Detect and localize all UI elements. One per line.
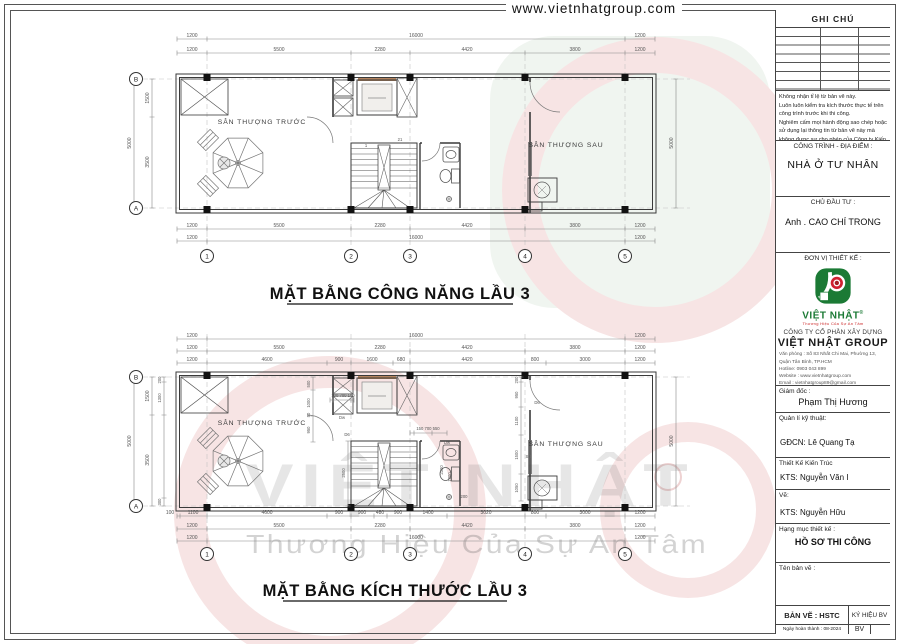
- grid-bubble-label: B: [134, 76, 138, 83]
- design-stage-label: Hạng mục thiết kế :: [776, 524, 890, 533]
- dim-label: 1200: [634, 535, 645, 541]
- dim-label: 1200: [186, 33, 197, 39]
- contact-line: Hotline: 0903 043 899: [779, 366, 887, 373]
- website-url: www.vietnhatgroup.com: [506, 1, 682, 16]
- dim-label: 1200: [186, 523, 197, 529]
- note-line: Nghiêm cấm mọi hành động sao chép hoặc s…: [779, 119, 887, 140]
- technical-manager-name: GĐCN: Lê Quang Tạ: [776, 438, 890, 447]
- dim-label: 3000: [579, 357, 590, 363]
- dim-label: 4420: [461, 47, 472, 53]
- dim-label: 1100: [514, 416, 519, 426]
- dim-label: 200: [461, 494, 469, 499]
- dim-label: 5000: [669, 137, 675, 148]
- design-stage-section: Hạng mục thiết kế : HỒ SƠ THI CÔNG: [776, 523, 890, 562]
- logo-brand-text: VIỆT NHẬT: [802, 310, 859, 321]
- architect-name: KTS: Nguyễn Văn I: [776, 473, 890, 482]
- floor-plan-drawing: VIỆT NHẬT Thương Hiệu Của Sự An Tâm: [0, 0, 900, 644]
- grid-bubble-label: 3: [408, 551, 412, 558]
- grid-bubble-label: A: [134, 205, 139, 212]
- dim-label: 1600: [366, 357, 377, 363]
- dim-label: 2280: [374, 523, 385, 529]
- dim-label: 3800: [569, 47, 580, 53]
- dim-label: 1200: [186, 47, 197, 53]
- room-label-front-terrace: SÂN THƯỢNG TRƯỚC: [218, 418, 306, 427]
- dim-label: 1500: [145, 390, 151, 401]
- dim-label: 1200: [634, 223, 645, 229]
- architecture-section: Thiết Kế Kiến Trúc KTS: Nguyễn Văn I: [776, 457, 890, 489]
- dim-label: 1500: [145, 92, 151, 103]
- dim-label: 900: [335, 510, 344, 516]
- dim-label: 3500: [145, 454, 151, 465]
- director-section: Giám đốc : Phạm Thị Hương: [776, 385, 890, 412]
- room-label-rear-terrace: SÂN THƯỢNG SAU: [528, 140, 603, 149]
- dim-label: 1400: [422, 510, 433, 516]
- dim-label: 1200: [634, 235, 645, 241]
- architecture-label: Thiết Kế Kiến Trúc: [776, 458, 890, 467]
- dim-label: 1200: [447, 472, 452, 482]
- revision-table: [776, 27, 890, 90]
- grid-bubble-label: 5: [623, 551, 627, 558]
- dim-label: 1300: [157, 393, 162, 403]
- dim-label: 800: [531, 510, 540, 516]
- grid-bubble-label: 2: [349, 253, 353, 260]
- company-name: VIỆT NHẬT GROUP: [776, 337, 890, 349]
- dim-label: 1200: [186, 333, 197, 339]
- dim-label: 3000: [579, 510, 590, 516]
- dim-label: 3800: [569, 523, 580, 529]
- grid-bubble-label: 1: [205, 551, 209, 558]
- dim-label: 2280: [374, 345, 385, 351]
- project-value: NHÀ Ở TƯ NHÂN: [776, 159, 890, 171]
- door-label: Dw: [444, 440, 451, 445]
- watermark-tagline-text: Thương Hiệu Của Sự An Tâm: [246, 529, 708, 559]
- dim-label: 4600: [261, 510, 272, 516]
- design-stage-value: HỒ SƠ THI CÔNG: [776, 537, 890, 547]
- dim-label: 16000: [409, 33, 423, 39]
- grid-bubble-label: 4: [523, 253, 527, 260]
- dim-label: 900: [335, 357, 344, 363]
- dim-label: 200: [157, 376, 162, 384]
- company-contact: Văn phòng : Số 83 Nhất Chi Mai, Phường 1…: [776, 351, 890, 385]
- room-label-rear-terrace: SÂN THƯỢNG SAU: [528, 439, 603, 448]
- title-block: GHI CHÚ Không nhận tỉ lệ từ bản vẽ này. …: [775, 10, 890, 634]
- door-label: D6: [534, 400, 540, 405]
- designer-section: ĐƠN VỊ THIẾT KẾ : VIỆT NHẬT® Thương Hiệu…: [776, 252, 890, 385]
- dim-label: 4420: [461, 223, 472, 229]
- dim-label: 1200: [634, 510, 645, 516]
- dim-label: 150 700 550: [416, 426, 440, 431]
- owner-section: CHỦ ĐẦU TƯ : Anh . CAO CHÍ TRONG: [776, 196, 890, 252]
- dim-label: 5500: [273, 523, 284, 529]
- dim-label: 3800: [569, 223, 580, 229]
- dim-label: 300: [157, 498, 162, 506]
- viet-nhat-logo-icon: [810, 263, 856, 309]
- dim-label: 1200: [634, 357, 645, 363]
- dim-label: 950: [514, 391, 519, 399]
- dim-label: 5500: [273, 345, 284, 351]
- dim-label: 5500: [273, 223, 284, 229]
- dim-label: 1200: [186, 535, 197, 541]
- plan2-title: MẶT BẰNG KÍCH THƯỚC LẦU 3: [263, 581, 528, 600]
- dim-label: 5000: [127, 435, 133, 446]
- symbol-label: KÝ HIỆU BV: [848, 606, 890, 624]
- dim-label: 680: [397, 357, 406, 363]
- dim-label: 3500: [145, 156, 151, 167]
- note-line: Luôn luôn kiểm tra kích thước thực tế tr…: [779, 102, 887, 118]
- notes-header: GHI CHÚ: [776, 10, 890, 27]
- dim-label: 5500: [273, 47, 284, 53]
- dim-label: 4420: [461, 357, 472, 363]
- dim-label: 1100: [188, 510, 199, 516]
- dim-label: 100: [166, 510, 175, 516]
- door-label: D6: [344, 432, 350, 437]
- dim-label: 950: [306, 426, 311, 434]
- dim-label: 16000: [409, 333, 423, 339]
- owner-label: CHỦ ĐẦU TƯ :: [776, 197, 890, 206]
- dim-label: 500: [306, 380, 311, 388]
- owner-value: Anh . CAO CHÍ TRONG: [776, 217, 890, 227]
- dim-label: 1200: [634, 33, 645, 39]
- company-logo: VIỆT NHẬT® Thương Hiệu Của Sự An Tâm CÔN…: [776, 262, 890, 385]
- dim-label: 800: [531, 357, 540, 363]
- stair-number: 1: [365, 143, 368, 148]
- dim-label: 1200: [186, 223, 197, 229]
- dim-label: 5000: [127, 137, 133, 148]
- project-section: CÔNG TRÌNH - ĐỊA ĐIỂM : NHÀ Ở TƯ NHÂN: [776, 140, 890, 196]
- door-label: Dw: [339, 415, 346, 420]
- completion-date-row: Ngày hoàn thành : 08-2024 BV: [776, 624, 890, 634]
- dim-label: 2280: [374, 223, 385, 229]
- notes-text: Không nhận tỉ lệ từ bản vẽ này. Luôn luô…: [776, 90, 890, 140]
- bv-cell: BV: [848, 625, 870, 634]
- dim-label: 1200: [186, 345, 197, 351]
- completion-date: Ngày hoàn thành : 08-2024: [776, 625, 848, 634]
- company-type: CÔNG TY CỔ PHẦN XÂY DỰNG: [776, 329, 890, 336]
- dim-label: 900: [358, 510, 367, 516]
- designer-label: ĐƠN VỊ THIẾT KẾ :: [776, 253, 890, 262]
- logo-tagline: Thương Hiệu Của Sự An Tâm: [776, 321, 890, 326]
- grid-bubble-label: A: [134, 503, 139, 510]
- director-name: Phạm Thị Hương: [776, 397, 890, 407]
- dim-label: 900: [394, 510, 403, 516]
- technical-manager-label: Quản lí kỹ thuật:: [776, 413, 890, 422]
- drawing-code: BẢN VẼ : HSTC: [776, 606, 848, 624]
- contact-line: Văn phòng : Số 83 Nhất Chi Mai, Phường 1…: [779, 351, 887, 365]
- plan1-title: MẶT BẰNG CÔNG NĂNG LẦU 3: [270, 284, 530, 303]
- grid-bubble-label: 1: [205, 253, 209, 260]
- grid-bubble-label: B: [134, 374, 138, 381]
- dim-label: 2500: [341, 468, 346, 478]
- dim-label: 1050: [514, 483, 519, 493]
- drawing-name-section: Tên bản vẽ :: [776, 562, 890, 605]
- dim-label: 2280: [374, 47, 385, 53]
- drawing-code-row: BẢN VẼ : HSTC KÝ HIỆU BV: [776, 605, 890, 624]
- room-label-front-terrace: SÂN THƯỢNG TRƯỚC: [218, 117, 306, 126]
- drawing-name-label: Tên bản vẽ :: [776, 563, 890, 572]
- grid-bubble-label: 3: [408, 253, 412, 260]
- dim-label: 4420: [461, 523, 472, 529]
- dim-label: 200: [514, 376, 519, 384]
- grid-bubble-label: 2: [349, 551, 353, 558]
- note-line: Không nhận tỉ lệ từ bản vẽ này.: [779, 93, 887, 101]
- empty-cell: [870, 625, 890, 634]
- dim-label: 1200: [634, 333, 645, 339]
- project-label: CÔNG TRÌNH - ĐỊA ĐIỂM :: [776, 141, 890, 150]
- drawn-by-name: KTS: Nguyễn Hữu: [776, 508, 890, 517]
- dim-label: 5000: [669, 435, 675, 446]
- dim-label: 1200: [634, 345, 645, 351]
- dim-label: 1200: [634, 47, 645, 53]
- notes-header-label: GHI CHÚ: [812, 14, 855, 24]
- dim-label: 4420: [461, 345, 472, 351]
- dim-label: 1500: [514, 450, 519, 460]
- dim-label: 3800: [569, 345, 580, 351]
- dim-label: 16000: [409, 535, 423, 541]
- director-label: Giám đốc :: [776, 386, 890, 395]
- dim-label: 1200: [186, 235, 197, 241]
- dim-label: 2300: [439, 465, 444, 475]
- dim-label: 16000: [409, 235, 423, 241]
- dim-label: 1200: [634, 523, 645, 529]
- dim-label: 4600: [261, 357, 272, 363]
- drawn-by-section: Vẽ: KTS: Nguyễn Hữu: [776, 489, 890, 523]
- dim-label: 1000: [306, 398, 311, 408]
- grid-bubble-label: 4: [523, 551, 527, 558]
- drawn-by-label: Vẽ:: [776, 490, 890, 499]
- stair-number: 21: [398, 137, 403, 142]
- registered-mark: ®: [860, 310, 864, 316]
- window-label: S8: [525, 454, 531, 459]
- dim-label: 480: [376, 510, 385, 516]
- dim-label: 3020: [480, 510, 491, 516]
- grid-bubble-label: 5: [623, 253, 627, 260]
- dim-label: 50: [306, 412, 311, 417]
- dim-label: 1200: [186, 357, 197, 363]
- technical-manager-section: Quản lí kỹ thuật: GĐCN: Lê Quang Tạ: [776, 412, 890, 457]
- contact-line: Website : www.vietnhatgroup.com: [779, 373, 887, 380]
- dim-label: 100 700 100: [331, 393, 355, 398]
- watermark: VIỆT NHẬT Thương Hiệu Của Sự An Tâm: [190, 36, 790, 644]
